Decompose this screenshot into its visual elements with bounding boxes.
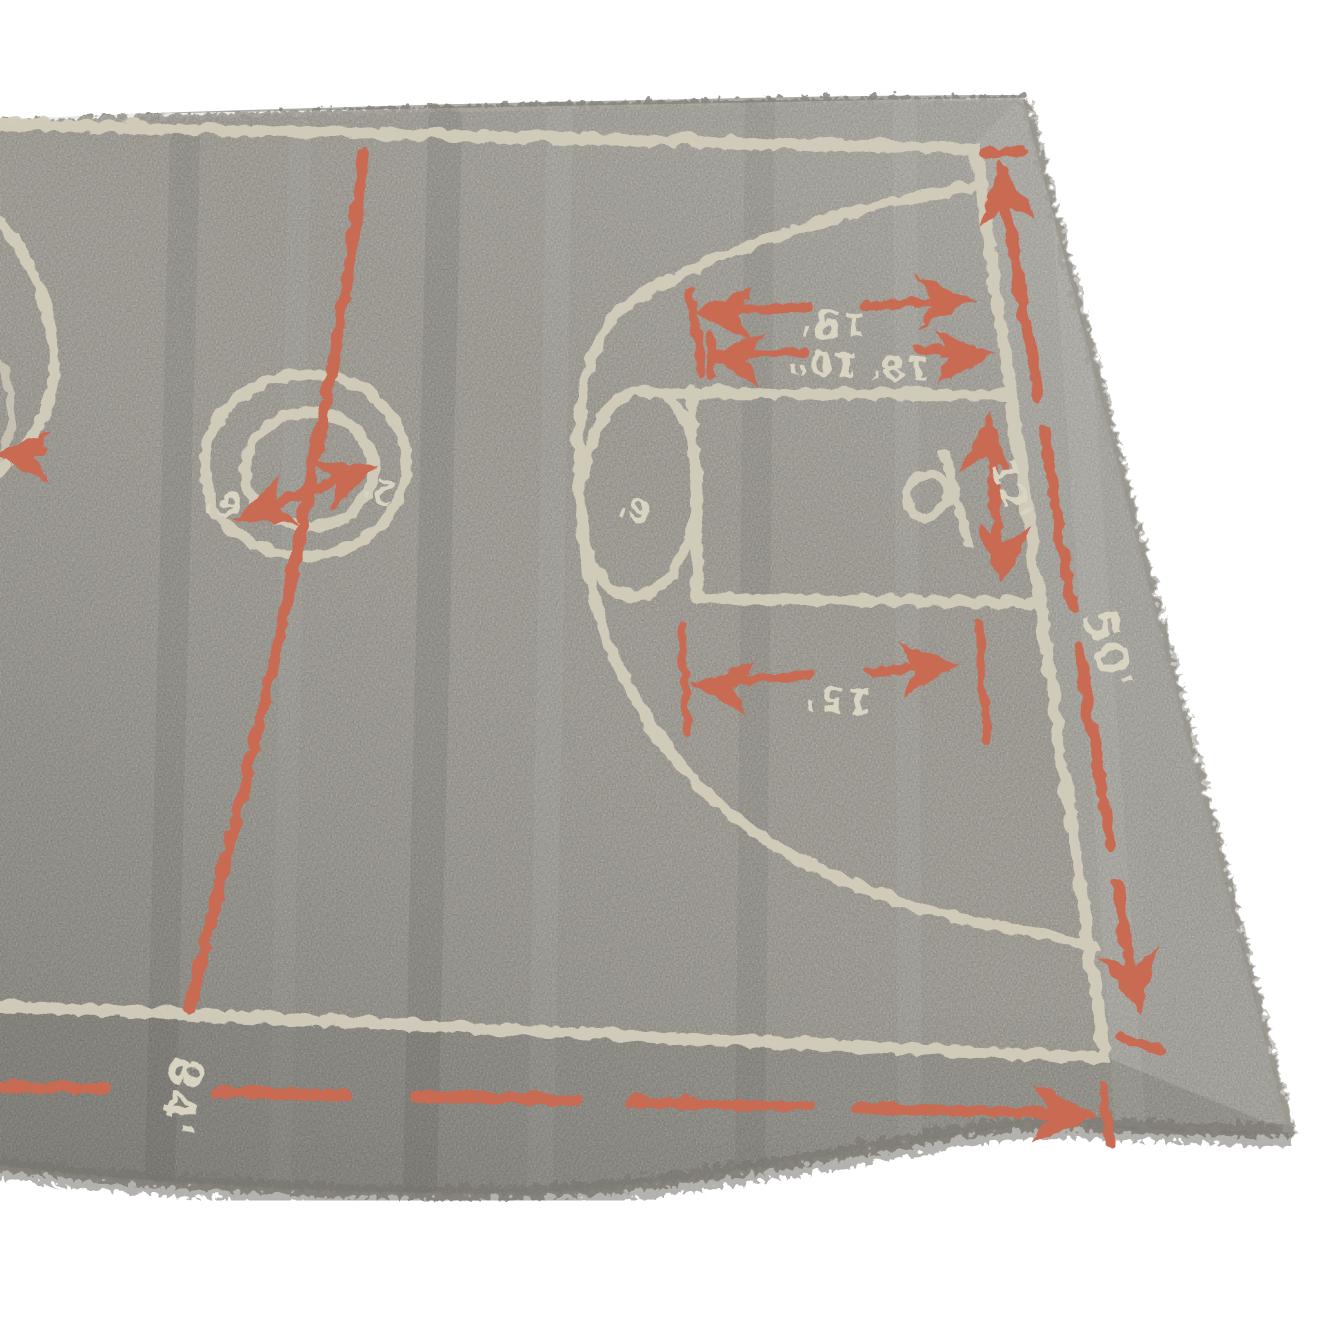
- tick-mark: [688, 292, 692, 330]
- lane-top-line: [641, 390, 1008, 393]
- label-center-circle-outer: 6': [203, 479, 242, 520]
- lane-bottom-line: [694, 596, 1038, 601]
- tick-mark: [680, 622, 686, 729]
- tick-mark: [695, 330, 699, 371]
- rug-product-photo: 19' 18' 10" 12' 15' 50' 84' 6' 2' 6': [0, 0, 1335, 1335]
- tick-mark: [981, 149, 1020, 152]
- rug-photo-canvas: 19' 18' 10" 12' 15' 50' 84' 6' 2' 6': [0, 0, 1335, 1335]
- label-free-throw-distance: 15': [802, 672, 872, 722]
- free-throw-line: [689, 387, 696, 596]
- label-three-point-distance: 19': [798, 298, 866, 344]
